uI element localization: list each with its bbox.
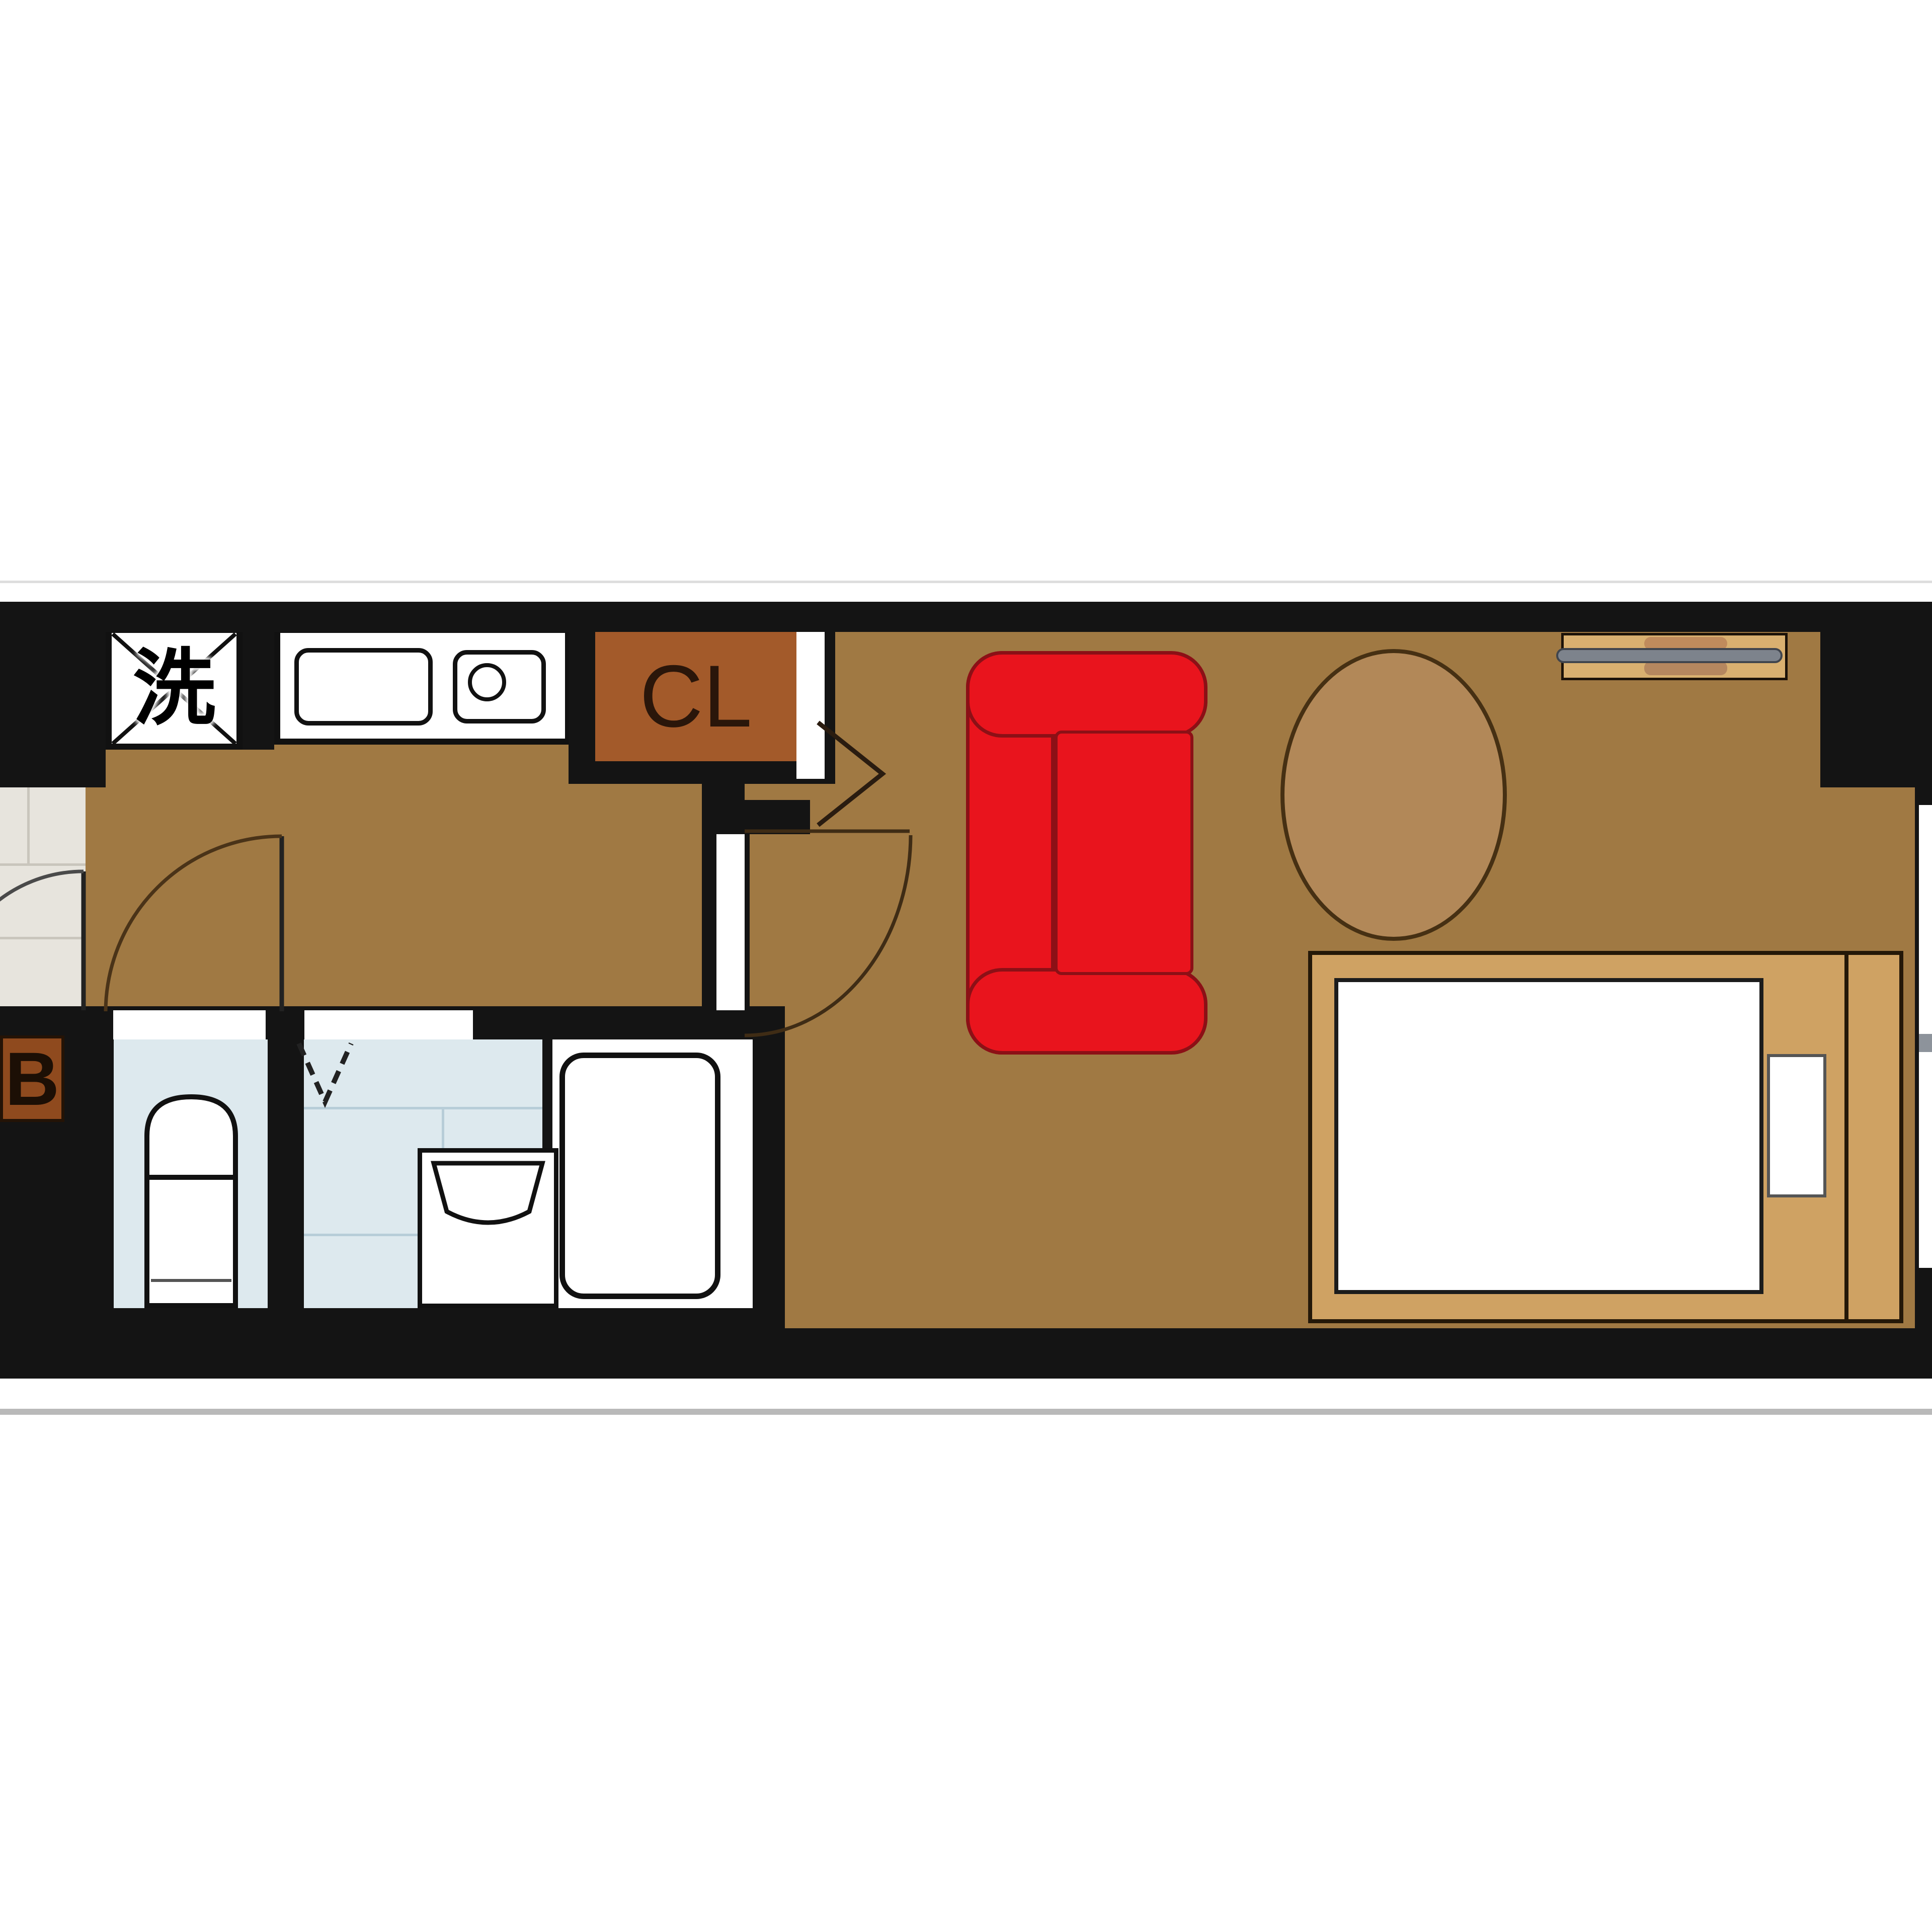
toilet-icon	[147, 1097, 235, 1306]
washer-label-box: 洗	[106, 627, 243, 750]
living-door-arc	[745, 835, 911, 1035]
plan-symbols-layer	[0, 0, 1932, 1932]
bathroom-door-arc	[106, 836, 282, 1011]
closet-folding-door-icon	[818, 722, 882, 825]
floor-plan-canvas: B CL	[0, 0, 1932, 1932]
entry-door-arc	[0, 871, 84, 1010]
bath-folding-door-icon	[299, 1043, 351, 1102]
vanity-bowl-icon	[434, 1163, 542, 1223]
washer-label-text: 洗	[133, 647, 216, 730]
